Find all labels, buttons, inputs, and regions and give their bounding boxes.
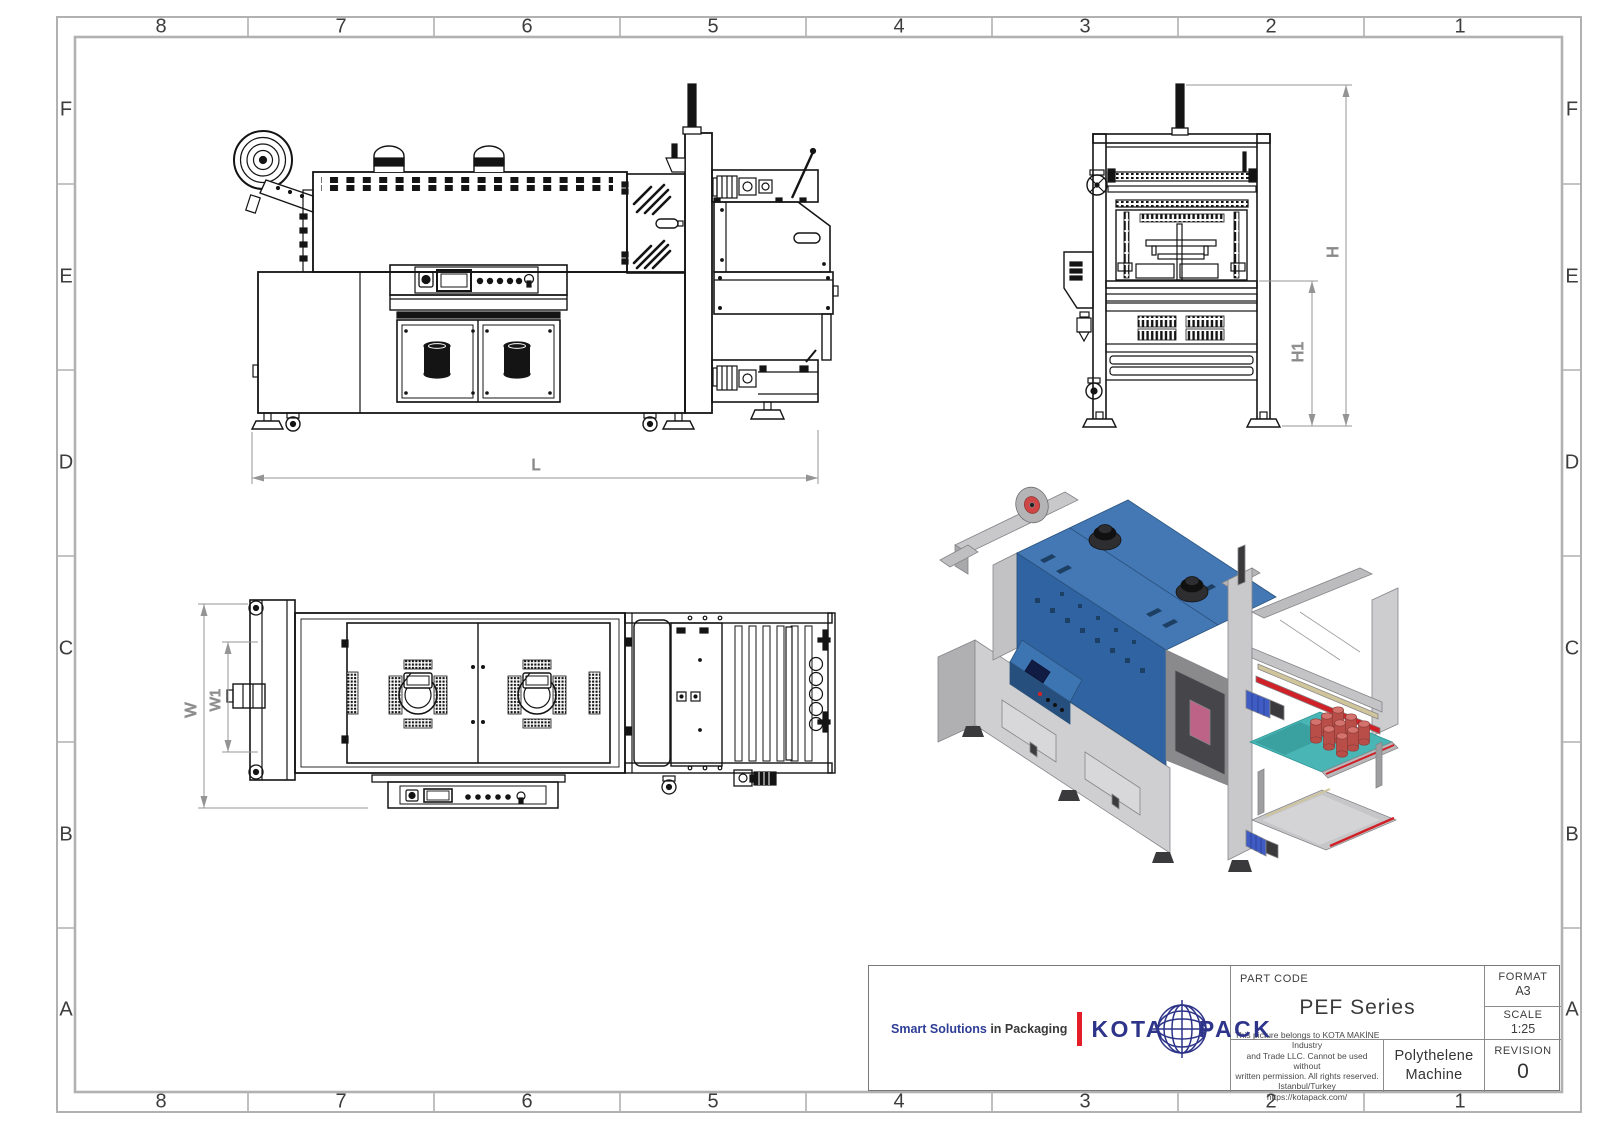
- cabinet-doors: [397, 320, 560, 402]
- disclaimer-line: written permission. All rights reserved.: [1234, 1071, 1380, 1081]
- zone-col-label: 8: [155, 16, 166, 39]
- zone-col-label: 5: [707, 16, 718, 39]
- logo-red-bar: [1077, 1012, 1082, 1046]
- iso-motor-icon: [1246, 830, 1278, 858]
- brand-word-kota: KOTA: [1091, 1016, 1164, 1043]
- zone-col-label: 3: [1079, 16, 1090, 39]
- zone-row-label: C: [1565, 638, 1579, 661]
- description-cell: Polythelene Machine: [1383, 1039, 1484, 1092]
- zone-col-label: 2: [1265, 16, 1276, 39]
- panel-buttons: [477, 278, 522, 284]
- zone-row-label: A: [59, 999, 72, 1022]
- infeed-drive-unit: [712, 149, 818, 203]
- zone-col-label: 3: [1079, 1091, 1090, 1114]
- disclaimer-line: and Trade LLC. Cannot be used without: [1234, 1051, 1380, 1072]
- format-cell: FORMAT A3: [1484, 966, 1561, 1006]
- disclaimer-cell: This picture belongs to KOTA MAKİNE Indu…: [1230, 1039, 1383, 1092]
- side-film-roll-icon: [1087, 170, 1107, 195]
- dim-H1-label: H1: [1290, 342, 1307, 363]
- zone-col-label: 1: [1454, 1091, 1465, 1114]
- zone-row-label: C: [59, 638, 73, 661]
- zone-row-label: E: [1565, 266, 1578, 289]
- dim-H1: H1: [1259, 281, 1318, 426]
- brand-word-pack: PACK: [1199, 1016, 1272, 1043]
- isometric-view: [938, 483, 1398, 872]
- tunnel-housing: [313, 172, 627, 272]
- zone-col-label: 4: [893, 16, 904, 39]
- side-view: [1064, 84, 1280, 427]
- zone-col-label: 5: [707, 1091, 718, 1114]
- zone-row-label: F: [1566, 99, 1578, 122]
- revision-value: 0: [1485, 1060, 1561, 1084]
- dim-W1-label: W1: [207, 689, 224, 712]
- zone-row-label: B: [59, 824, 72, 847]
- zone-row-label: D: [1565, 452, 1579, 475]
- zone-col-label: 8: [155, 1091, 166, 1114]
- tagline-rest: in Packaging: [987, 1022, 1068, 1036]
- drawing-sheet: L H H1 W W1: [0, 0, 1600, 1131]
- disclaimer-line: https://kotapack.com/: [1234, 1092, 1380, 1102]
- discharge-hood: [714, 202, 830, 272]
- dim-H-label: H: [1325, 246, 1342, 258]
- feet-casters: [252, 413, 694, 431]
- revision-label: REVISION: [1485, 1045, 1561, 1057]
- scale-value: 1:25: [1485, 1022, 1561, 1036]
- zone-col-label: 7: [335, 1091, 346, 1114]
- outfeed-drive-unit: [712, 350, 818, 419]
- format-value: A3: [1485, 984, 1561, 998]
- control-panel-top: [372, 775, 565, 808]
- title-block: Smart Solutions in Packaging KOTA PACK P…: [868, 965, 1560, 1091]
- machine-description: Polythelene Machine: [1384, 1047, 1484, 1085]
- zone-row-label: A: [1565, 999, 1578, 1022]
- zone-row-label: F: [60, 99, 72, 122]
- dim-L-label: L: [532, 457, 541, 474]
- film-roll-icon: [234, 131, 313, 213]
- scale-label: SCALE: [1485, 1009, 1561, 1021]
- disclaimer-line: Istanbul/Turkey: [1234, 1081, 1380, 1091]
- sealing-chamber: [1116, 210, 1247, 280]
- zone-col-label: 6: [521, 16, 532, 39]
- control-panel: [390, 265, 567, 295]
- sheet-frame: [57, 17, 1581, 1112]
- support-column: [666, 84, 712, 413]
- zone-col-label: 1: [1454, 16, 1465, 39]
- zone-row-label: E: [59, 266, 72, 289]
- roller-conveyor: [625, 613, 835, 773]
- revision-cell: REVISION 0: [1484, 1039, 1561, 1092]
- logo-cell: Smart Solutions in Packaging KOTA PACK: [869, 966, 1230, 1092]
- tagline: Smart Solutions in Packaging: [891, 1022, 1067, 1036]
- drawing-canvas: L H H1 W W1: [0, 0, 1600, 1131]
- front-view: [234, 84, 838, 431]
- tunnel-window-panel: [622, 174, 685, 273]
- part-code-label: PART CODE: [1240, 973, 1308, 985]
- brand-logo: KOTA PACK: [1091, 1016, 1272, 1043]
- tunnel-lid-fan: [347, 660, 447, 728]
- film-mount: [227, 684, 265, 708]
- zone-col-label: 6: [521, 1091, 532, 1114]
- tunnel-lid-fan: [508, 660, 600, 728]
- tunnel-slot: [397, 312, 560, 318]
- top-view: [227, 600, 835, 808]
- zone-col-label: 7: [335, 16, 346, 39]
- tagline-highlight: Smart Solutions: [891, 1022, 987, 1036]
- scale-cell: SCALE 1:25: [1484, 1006, 1561, 1039]
- tunnel-fan-icon: [374, 146, 504, 172]
- air-filter-icon: [1077, 312, 1091, 341]
- zone-row-label: B: [1565, 824, 1578, 847]
- dim-W-label: W: [183, 702, 200, 718]
- zone-col-label: 4: [893, 1091, 904, 1114]
- zone-ticks: [57, 17, 1581, 1112]
- format-label: FORMAT: [1485, 971, 1561, 983]
- dim-L: L: [252, 430, 818, 484]
- zone-row-label: D: [59, 452, 73, 475]
- hmi-screen: [437, 270, 471, 291]
- heater-canister-icon: [424, 342, 530, 378]
